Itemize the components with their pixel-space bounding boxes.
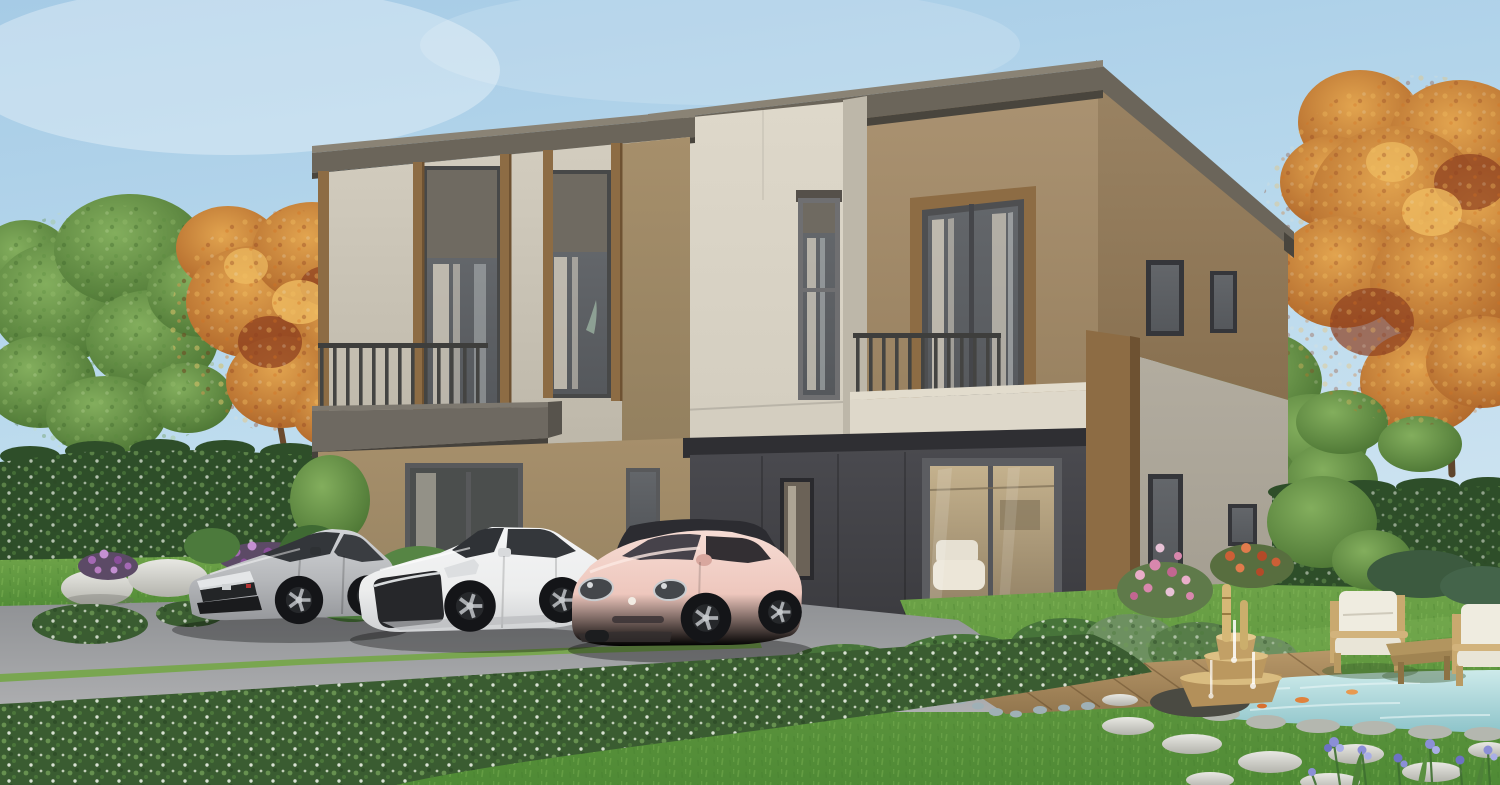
left-block-tan-section	[622, 137, 690, 446]
balcony-rail-top	[318, 343, 488, 348]
center-narrow-window	[796, 190, 842, 400]
rear-wheel	[758, 590, 802, 634]
seat-cushion	[1457, 650, 1500, 667]
curtain	[932, 219, 944, 411]
front-wheel	[275, 576, 323, 624]
side-mirror	[310, 547, 321, 555]
upper-window-left-2	[545, 170, 611, 398]
koi-fish	[1295, 697, 1309, 703]
water-stream	[1233, 620, 1236, 658]
rendered-photo	[0, 0, 1500, 785]
curtain	[807, 238, 816, 390]
water-stream	[1252, 652, 1255, 684]
side-mirror	[696, 554, 712, 566]
scene-svg	[0, 0, 1500, 785]
grille	[374, 571, 444, 628]
red-badge	[246, 584, 251, 588]
ora-badge	[628, 597, 636, 605]
water-stream	[1210, 660, 1213, 694]
center-block-return	[843, 96, 867, 440]
side-mirror	[498, 548, 511, 557]
upper-window-left	[423, 166, 501, 412]
curtain	[554, 257, 567, 389]
front-wheel	[681, 593, 732, 644]
curtain	[433, 264, 449, 404]
curtain	[788, 486, 796, 572]
koi-fish	[1257, 704, 1267, 709]
bamboo-post	[1240, 600, 1248, 650]
honda-badge	[222, 584, 231, 590]
front-wheel	[444, 580, 496, 632]
grille-slot	[612, 616, 664, 623]
koi-fish	[1346, 689, 1358, 694]
